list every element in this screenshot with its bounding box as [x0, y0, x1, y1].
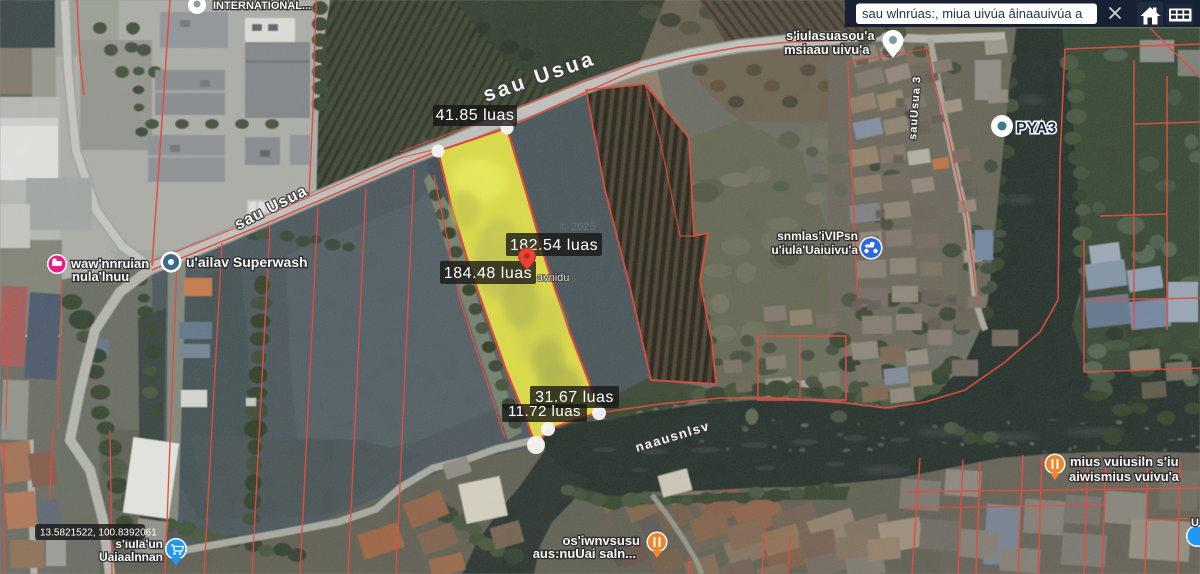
svg-text:U: U — [1191, 517, 1199, 529]
svg-text:aiwismius vuivu'a: aiwismius vuivu'a — [1069, 469, 1180, 484]
svg-text:aus:nuUai saln...: aus:nuUai saln... — [533, 546, 636, 561]
svg-text:u'ailav Superwash: u'ailav Superwash — [186, 254, 308, 270]
svg-text:sau wlnrúas:, miua uivúa âinaa: sau wlnrúas:, miua uivúa âinaauivúa a — [862, 6, 1083, 21]
svg-text:13.5821522, 100.8392061: 13.5821522, 100.8392061 — [40, 528, 157, 539]
svg-text:INTERNATIONAL...: INTERNATIONAL... — [213, 0, 311, 12]
svg-text:nula'lnuu: nula'lnuu — [72, 269, 129, 284]
svg-text:mius vuiusiln s'iu: mius vuiusiln s'iu — [1070, 454, 1179, 469]
svg-text:184.48 luas: 184.48 luas — [444, 265, 532, 282]
svg-text:41.85 luas: 41.85 luas — [436, 107, 515, 124]
svg-text:11.72 luas: 11.72 luas — [508, 403, 581, 420]
svg-text:© 2025: © 2025 — [560, 221, 596, 233]
svg-text:msiaau uivu'a: msiaau uivu'a — [784, 42, 870, 57]
svg-text:PYA3: PYA3 — [1016, 120, 1056, 137]
svg-text:avnidu: avnidu — [537, 272, 569, 284]
svg-text:Uaiaalnnan: Uaiaalnnan — [99, 550, 163, 564]
svg-text:s'iulasuasou'a: s'iulasuasou'a — [786, 28, 875, 43]
svg-text:u'iula'Uaiuivu'a: u'iula'Uaiuivu'a — [771, 243, 858, 257]
svg-text:snmlas'iVIPsn: snmlas'iVIPsn — [777, 229, 858, 243]
